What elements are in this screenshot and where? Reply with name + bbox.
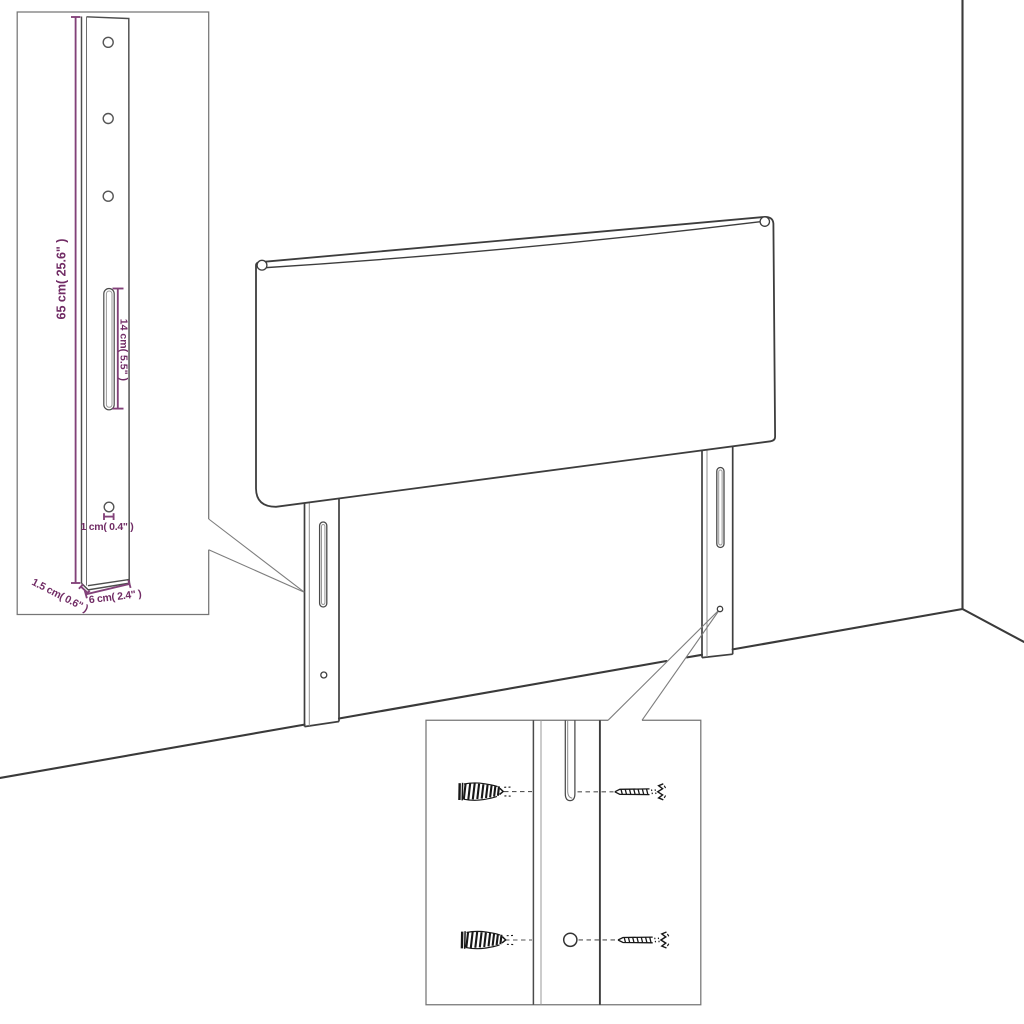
svg-text:65 cm( 25.6" ): 65 cm( 25.6" ) [55,239,69,320]
svg-text:14 cm( 5.5" ): 14 cm( 5.5" ) [117,319,129,381]
svg-text:1 cm( 0.4" ): 1 cm( 0.4" ) [81,521,134,533]
